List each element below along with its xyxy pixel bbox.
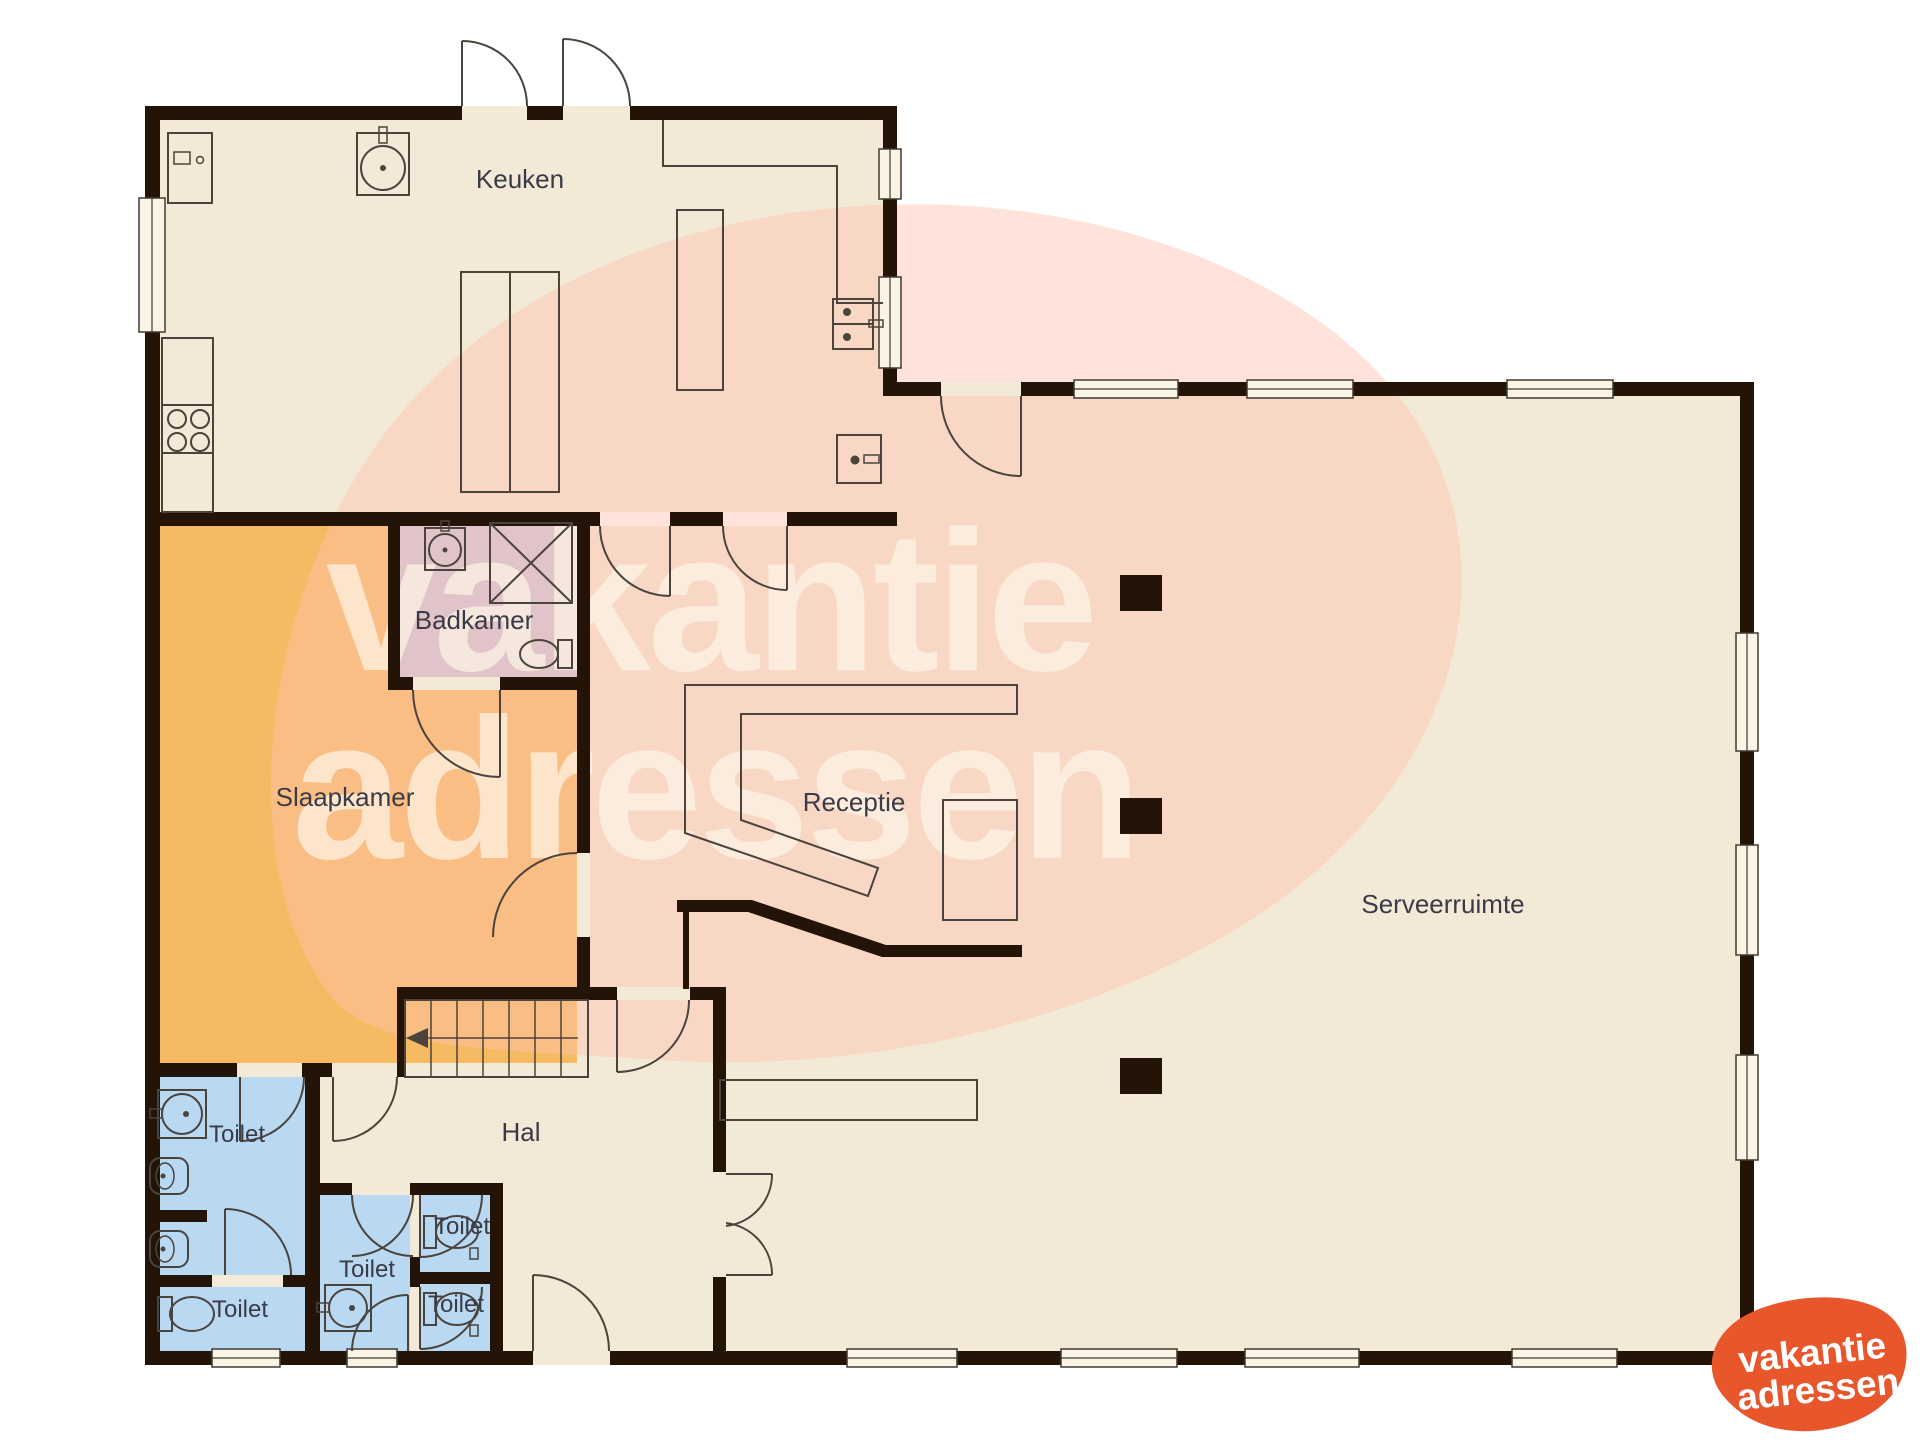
window	[139, 198, 165, 332]
window	[1061, 1349, 1177, 1367]
window	[347, 1349, 397, 1367]
room-label-toilet-rechtsboven: Toilet	[434, 1213, 490, 1240]
window	[847, 1349, 957, 1367]
room-label-serveerruimte: Serveerruimte	[1361, 889, 1524, 919]
floorplan-page: vakantie adressen	[0, 0, 1920, 1440]
column	[1120, 798, 1162, 834]
room-label-toilet-rechtsonder: Toilet	[428, 1291, 484, 1318]
window	[1736, 1055, 1758, 1160]
door-keuken-exterior-2	[563, 39, 630, 106]
floorplan-svg: vakantie adressen	[0, 0, 1920, 1440]
room-label-toilet-midden: Toilet	[339, 1256, 395, 1283]
column	[1120, 1058, 1162, 1094]
window	[879, 149, 901, 199]
window	[212, 1349, 280, 1367]
window	[1736, 633, 1758, 751]
window	[1245, 1349, 1359, 1367]
column	[1120, 575, 1162, 611]
room-label-hal: Hal	[501, 1117, 540, 1147]
window	[1507, 380, 1613, 398]
window	[1074, 380, 1178, 398]
room-label-badkamer: Badkamer	[415, 605, 534, 635]
room-label-receptie: Receptie	[803, 787, 906, 817]
room-label-slaapkamer: Slaapkamer	[276, 782, 415, 812]
room-label-toilet-groot: Toilet	[209, 1121, 265, 1148]
room-label-toilet-linksonder: Toilet	[212, 1296, 268, 1323]
window	[1247, 380, 1353, 398]
room-label-keuken: Keuken	[476, 164, 564, 194]
window	[1512, 1349, 1617, 1367]
watermark-line2: adressen	[292, 678, 1138, 901]
door-keuken-exterior-1	[462, 41, 527, 106]
window	[1736, 845, 1758, 955]
